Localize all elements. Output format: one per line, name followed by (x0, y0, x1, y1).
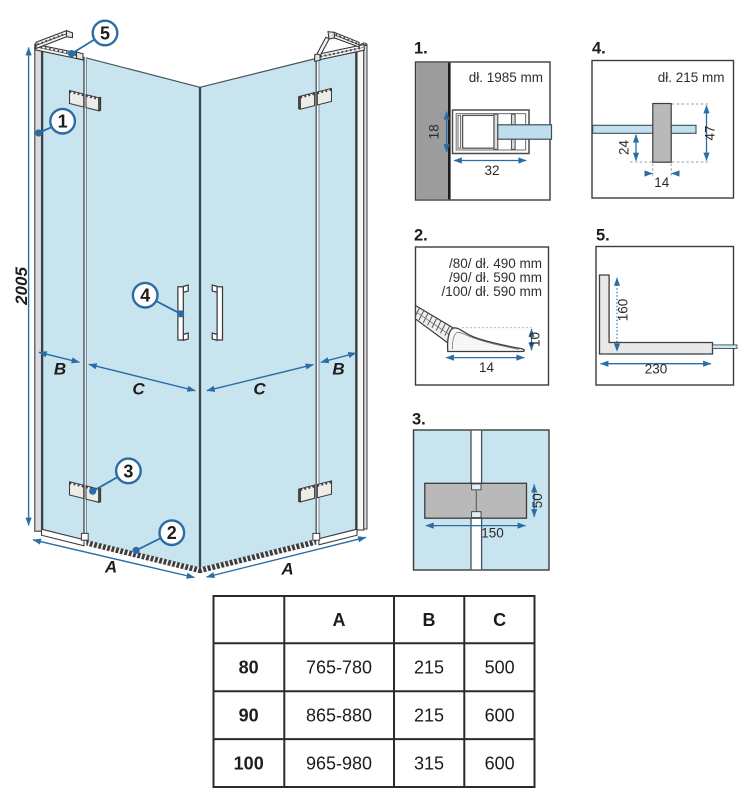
svg-text:160: 160 (616, 299, 631, 322)
svg-text:2: 2 (167, 523, 177, 543)
svg-text:3.: 3. (412, 411, 426, 429)
svg-text:/90/ dł. 590 mm: /90/ dł. 590 mm (449, 270, 542, 285)
svg-text:50: 50 (530, 493, 545, 508)
svg-text:2005: 2005 (12, 267, 31, 306)
svg-text:B: B (332, 360, 344, 379)
svg-text:80: 80 (239, 658, 259, 678)
svg-text:4.: 4. (592, 40, 606, 58)
svg-text:C: C (132, 380, 145, 399)
svg-text:90: 90 (239, 705, 259, 725)
svg-text:865-880: 865-880 (306, 705, 372, 725)
svg-text:1.: 1. (414, 40, 428, 58)
svg-text:765-780: 765-780 (306, 658, 372, 678)
svg-text:1: 1 (58, 112, 68, 132)
svg-text:47: 47 (703, 125, 718, 140)
svg-text:315: 315 (414, 753, 444, 773)
svg-text:5.: 5. (596, 227, 610, 245)
svg-text:500: 500 (485, 658, 515, 678)
svg-text:2.: 2. (414, 227, 428, 245)
svg-text:14: 14 (479, 360, 495, 375)
svg-text:14: 14 (654, 175, 670, 190)
svg-text:3: 3 (123, 461, 133, 481)
svg-text:32: 32 (484, 163, 499, 178)
svg-text:dł. 215 mm: dł. 215 mm (658, 70, 725, 85)
svg-text:600: 600 (485, 753, 515, 773)
svg-text:965-980: 965-980 (306, 753, 372, 773)
svg-text:4: 4 (140, 286, 150, 306)
svg-text:150: 150 (481, 526, 504, 541)
svg-text:600: 600 (485, 705, 515, 725)
svg-text:/80/ dł. 490 mm: /80/ dł. 490 mm (449, 256, 542, 271)
svg-text:100: 100 (234, 753, 264, 773)
svg-text:dł. 1985 mm: dł. 1985 mm (469, 70, 543, 85)
svg-text:10: 10 (528, 332, 543, 347)
svg-text:18: 18 (427, 124, 442, 139)
svg-text:5: 5 (100, 24, 110, 44)
svg-text:A: A (104, 558, 117, 577)
svg-text:A: A (333, 610, 346, 630)
svg-text:/100/ dł. 590 mm: /100/ dł. 590 mm (441, 284, 542, 299)
svg-text:215: 215 (414, 705, 444, 725)
svg-text:230: 230 (645, 362, 668, 377)
svg-text:B: B (54, 360, 66, 379)
svg-text:A: A (280, 560, 293, 579)
svg-text:C: C (493, 610, 506, 630)
svg-text:215: 215 (414, 658, 444, 678)
svg-text:24: 24 (617, 140, 632, 156)
svg-text:C: C (253, 380, 266, 399)
svg-text:B: B (423, 610, 436, 630)
